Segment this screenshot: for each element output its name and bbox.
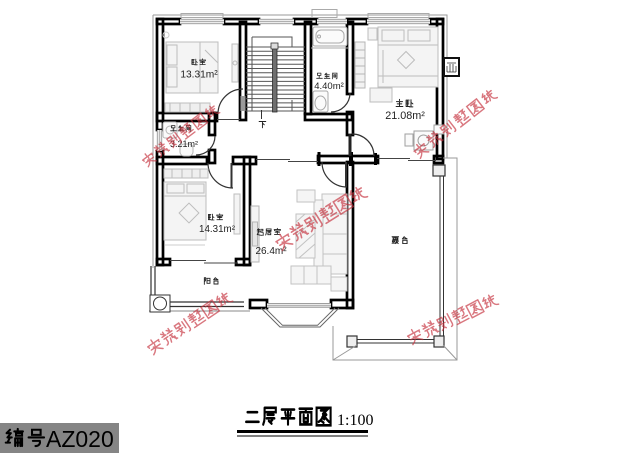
svg-text:13.31m²: 13.31m² xyxy=(180,70,218,81)
svg-text:26.4m²: 26.4m² xyxy=(255,246,287,257)
svg-text:21.08m²: 21.08m² xyxy=(385,110,425,122)
svg-text:14.31m²: 14.31m² xyxy=(199,224,236,235)
svg-text:4.40m²: 4.40m² xyxy=(314,81,344,92)
svg-text:1:100: 1:100 xyxy=(337,412,373,429)
svg-text:AZ020: AZ020 xyxy=(46,426,114,452)
